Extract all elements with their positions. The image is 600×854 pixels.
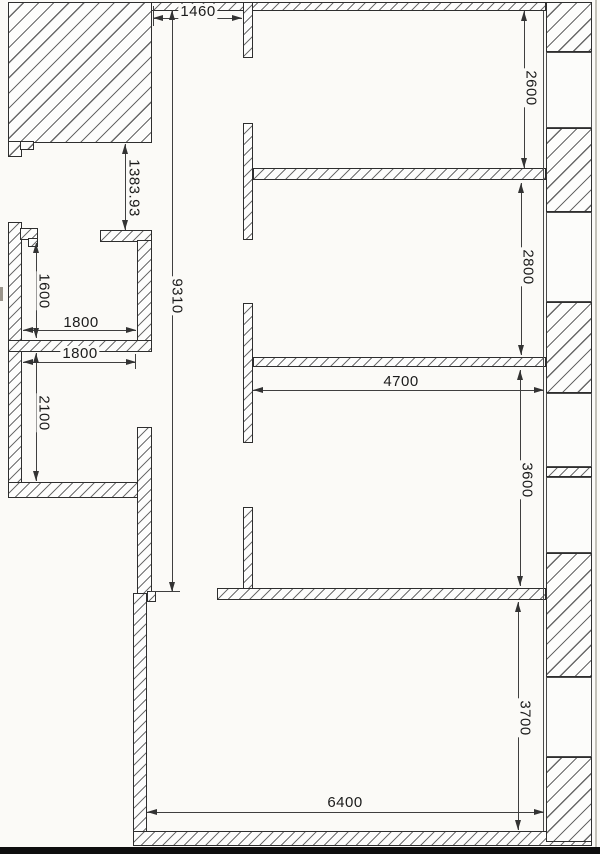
- wall-right-pier2: [546, 128, 592, 212]
- dimension-label-1800a: 1800: [61, 315, 100, 330]
- arrowhead: [122, 220, 128, 230]
- arrowhead: [521, 158, 527, 168]
- dimension-label-1800b: 1800: [60, 346, 99, 361]
- dimension-label-1460: 1460: [178, 4, 217, 19]
- arrowhead: [147, 809, 157, 815]
- wall-divider-room1-room2: [253, 168, 546, 180]
- dimension-label-9310: 9310: [170, 276, 185, 315]
- dimension-label-6400: 6400: [325, 795, 364, 810]
- arrowhead: [126, 359, 136, 365]
- arrowhead: [33, 243, 39, 253]
- arrowhead: [23, 359, 33, 365]
- wall-corridor-right-seg2: [243, 123, 253, 240]
- dimension-label-1600: 1600: [37, 271, 52, 310]
- wall-corridor-left-upper: [137, 240, 152, 343]
- dimension-line-1800b: [23, 362, 136, 363]
- wall-block-step: [20, 141, 34, 150]
- scan-bar-bottom: [0, 847, 600, 854]
- wall-right-pier4: [546, 553, 592, 677]
- wall-right-inner-face: [543, 11, 544, 831]
- arrowhead: [517, 576, 523, 586]
- arrowhead: [534, 387, 544, 393]
- arrowhead: [33, 353, 39, 363]
- wall-corridor-left-lower: [137, 427, 152, 594]
- arrowhead: [518, 345, 524, 355]
- wall-divider-room2-room3: [253, 357, 546, 367]
- arrowhead: [33, 471, 39, 481]
- wall-room2100-bottom: [8, 482, 140, 498]
- arrowhead: [518, 183, 524, 193]
- scan-smudge-left: [0, 287, 3, 301]
- arrowhead: [232, 15, 242, 21]
- arrowhead: [33, 328, 39, 338]
- dimension-label-2600: 2600: [524, 68, 539, 107]
- arrowhead: [169, 10, 175, 20]
- dimension-label-1383: 1383.93: [127, 157, 142, 219]
- window-room2: [546, 212, 592, 302]
- dimension-label-4700: 4700: [381, 374, 420, 389]
- arrowhead: [534, 809, 544, 815]
- arrowhead: [122, 144, 128, 154]
- arrowhead: [126, 327, 136, 333]
- scan-edge-right: [595, 0, 597, 847]
- wall-block-top-left: [8, 2, 152, 143]
- dimension-line-4700: [253, 390, 544, 391]
- arrowhead: [23, 327, 33, 333]
- wall-right-pier3: [546, 302, 592, 393]
- arrowhead: [521, 11, 527, 21]
- dimension-line-6400: [147, 812, 544, 813]
- dimension-label-3600: 3600: [520, 460, 535, 499]
- arrowhead: [517, 370, 523, 380]
- tick-9310-bottom: [150, 591, 180, 592]
- wall-corridor-step-notch: [147, 591, 156, 602]
- dimension-label-2100: 2100: [37, 393, 52, 432]
- window-room3-upper: [546, 393, 592, 467]
- wall-right-pier5: [546, 757, 592, 842]
- arrowhead: [515, 820, 521, 830]
- wall-corridor-right-seg1: [243, 2, 253, 58]
- dimension-label-2800: 2800: [521, 247, 536, 286]
- wall-divider-room3-room4: [217, 588, 546, 600]
- window-room1: [546, 52, 592, 128]
- wall-bottomroom-left: [133, 593, 147, 845]
- floor-plan-canvas: 1460 1383.93 9310 1600 1800 1800 2100 47…: [0, 0, 600, 854]
- window-room3-lower: [546, 477, 592, 553]
- arrowhead: [153, 15, 163, 21]
- dimension-label-3700: 3700: [518, 698, 533, 737]
- window-room4: [546, 677, 592, 757]
- wall-right-pier1: [546, 2, 592, 52]
- wall-corridor-right-seg4: [243, 507, 253, 590]
- wall-left-exterior: [8, 222, 22, 498]
- wall-corridor-right-seg3: [243, 303, 253, 443]
- wall-bottom-exterior: [133, 831, 592, 846]
- arrowhead: [169, 582, 175, 592]
- arrowhead: [515, 602, 521, 612]
- wall-right-mullion: [546, 467, 592, 477]
- arrowhead: [253, 387, 263, 393]
